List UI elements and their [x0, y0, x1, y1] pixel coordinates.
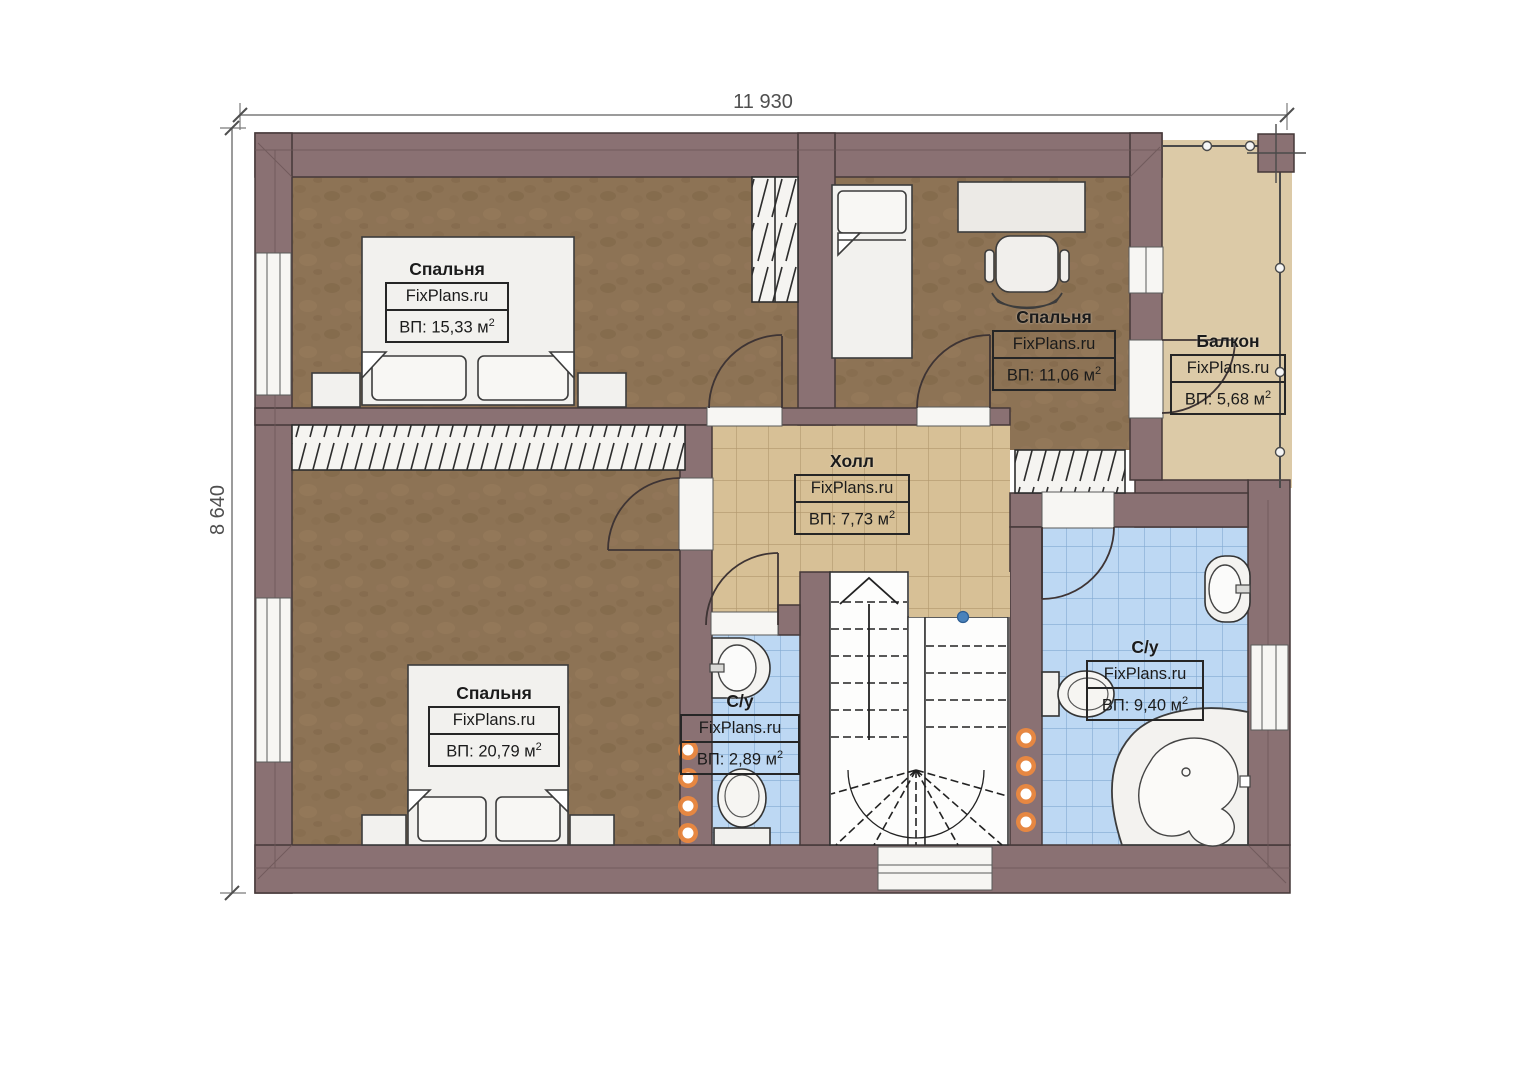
stair-flight-right — [925, 617, 1008, 845]
watermark: FixPlans.ru — [387, 284, 507, 311]
room-info-box: FixPlans.ru ВП: 9,40 м2 — [1086, 660, 1204, 721]
watermark: FixPlans.ru — [1172, 356, 1284, 383]
floor-plan-page: 11 930 8 640 Спальня FixPlans.ru ВП: 15,… — [0, 0, 1528, 1080]
room-area: ВП: 5,68 м2 — [1172, 383, 1284, 413]
nightstand — [312, 373, 360, 407]
room-info-box: FixPlans.ru ВП: 11,06 м2 — [992, 330, 1116, 391]
sink-large-bath — [1205, 556, 1250, 622]
stair-marker-dot — [958, 612, 969, 623]
nightstand — [362, 815, 406, 845]
room-label-hall: Холл FixPlans.ru ВП: 7,73 м2 — [794, 450, 910, 535]
opening-balcony-door — [1129, 340, 1163, 418]
window-bottom — [878, 847, 992, 890]
window-left-top — [256, 253, 291, 395]
watermark: FixPlans.ru — [994, 332, 1114, 359]
room-name: С/у — [1086, 636, 1204, 658]
room-area: ВП: 20,79 м2 — [430, 735, 558, 765]
room-name: Спальня — [992, 306, 1116, 328]
room-area: ВП: 9,40 м2 — [1088, 689, 1202, 719]
watermark: FixPlans.ru — [796, 476, 908, 503]
wall-stairs-left — [800, 572, 830, 845]
watermark: FixPlans.ru — [430, 708, 558, 735]
window-left-bottom — [256, 598, 291, 762]
wall-left — [255, 133, 292, 893]
sink-tap — [710, 664, 724, 672]
room-label-bathroom-large: С/у FixPlans.ru ВП: 9,40 м2 — [1086, 636, 1204, 721]
window-right — [1251, 645, 1288, 730]
opening-door-bedroom-tr — [917, 407, 990, 426]
nightstand — [570, 815, 614, 845]
dimension-height-label: 8 640 — [207, 485, 229, 535]
room-label-bathroom-small: С/у FixPlans.ru ВП: 2,89 м2 — [680, 690, 800, 775]
watermark: FixPlans.ru — [1088, 662, 1202, 689]
room-info-box: FixPlans.ru ВП: 2,89 м2 — [680, 714, 800, 775]
wall-top — [255, 133, 1162, 177]
nightstand — [578, 373, 626, 407]
room-info-box: FixPlans.ru ВП: 5,68 м2 — [1170, 354, 1286, 415]
watermark: FixPlans.ru — [682, 716, 798, 743]
room-area: ВП: 15,33 м2 — [387, 311, 507, 341]
room-label-balcony: Балкон FixPlans.ru ВП: 5,68 м2 — [1170, 330, 1286, 415]
desk-bedroom-tr — [958, 182, 1085, 232]
opening-door-bedroom-tl — [707, 407, 782, 426]
wall-bath-small-stub — [778, 605, 800, 635]
wall-bedrooms-divider — [798, 133, 835, 425]
room-info-box: FixPlans.ru ВП: 7,73 м2 — [794, 474, 910, 535]
room-area: ВП: 2,89 м2 — [682, 743, 798, 773]
room-label-bedroom-top-left: Спальня FixPlans.ru ВП: 15,33 м2 — [385, 258, 509, 343]
floor-hall-arm-right — [909, 572, 1010, 617]
room-name: С/у — [680, 690, 800, 712]
dimension-width-label: 11 930 — [733, 91, 793, 113]
room-label-bedroom-bottom-left: Спальня FixPlans.ru ВП: 20,79 м2 — [428, 682, 560, 767]
opening-door-bedroom-bl — [679, 478, 713, 550]
staircase — [830, 572, 1010, 845]
room-name: Балкон — [1170, 330, 1286, 352]
room-area: ВП: 7,73 м2 — [796, 503, 908, 533]
floor-plan-drawing: 11 930 8 640 — [0, 0, 1528, 1080]
bed-bedroom-tr — [832, 185, 912, 358]
room-info-box: FixPlans.ru ВП: 15,33 м2 — [385, 282, 509, 343]
opening-door-bath-large — [1042, 492, 1114, 528]
floor-balcony — [1162, 140, 1292, 488]
opening-door-bath-small — [711, 612, 778, 635]
wall-bottom — [255, 845, 1290, 893]
room-name: Спальня — [385, 258, 509, 280]
room-label-bedroom-top-right: Спальня FixPlans.ru ВП: 11,06 м2 — [992, 306, 1116, 391]
wardrobe-bedroom-bl — [292, 425, 685, 470]
wall-hall-top — [255, 408, 1010, 425]
wardrobe-bedroom-tr — [1015, 450, 1125, 493]
room-area: ВП: 11,06 м2 — [994, 359, 1114, 389]
wall-balcony-separator — [1130, 133, 1162, 480]
room-name: Спальня — [428, 682, 560, 704]
toilet-small-bath — [714, 769, 770, 845]
bathtub-tap — [1240, 776, 1250, 787]
room-info-box: FixPlans.ru ВП: 20,79 м2 — [428, 706, 560, 767]
room-name: Холл — [794, 450, 910, 472]
